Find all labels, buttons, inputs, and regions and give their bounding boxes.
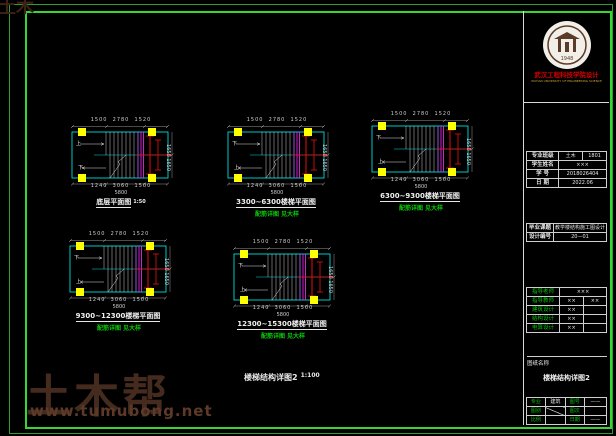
plan-title: 12300~15300楼梯平面图 bbox=[228, 320, 338, 328]
cell: 土木 bbox=[559, 152, 583, 161]
dimension-bottom: 1240 3060 1500 bbox=[222, 184, 332, 189]
cell: 专业班级 bbox=[527, 152, 559, 161]
cell bbox=[545, 416, 565, 425]
organization-name-en: WUHAN UNIVERSITY OF ENGINEERING SCIENCE bbox=[530, 79, 602, 83]
sheet-name-value: 楼梯结构详图2 bbox=[524, 373, 609, 383]
cell: 日 期 bbox=[527, 179, 559, 188]
cell: ×× bbox=[583, 297, 606, 306]
university-seal-icon: 1948 bbox=[541, 19, 593, 71]
plan-title: 9300~12300楼梯平面图 bbox=[64, 312, 174, 320]
cell: ×× bbox=[560, 324, 584, 333]
dimension-top: 1500 2780 1520 bbox=[66, 118, 176, 123]
watermark-corner: 土木帮 bbox=[0, 0, 42, 14]
drawing-number-grid: 专业 建筑 图号 —— 图别 图次 比例 日期 —— bbox=[526, 397, 607, 425]
cell: 电算设计 bbox=[527, 324, 560, 333]
up-label: 下 bbox=[238, 262, 243, 269]
stair-plan-drawing bbox=[228, 246, 338, 310]
cell bbox=[584, 407, 606, 416]
title-block-logo-section: 1948 武汉工程科技学院设计 WUHAN UNIVERSITY OF ENGI… bbox=[524, 11, 609, 103]
cell bbox=[583, 306, 606, 315]
plan-note: 配筋详图 见大样 bbox=[222, 209, 332, 218]
dimension-right: 1650 1650 bbox=[165, 144, 170, 171]
cell: 毕业课题 bbox=[527, 224, 554, 233]
cell: 2018026404 bbox=[559, 170, 607, 179]
dimension-bottom: 1240 3060 1500 bbox=[228, 306, 338, 311]
cell bbox=[583, 315, 606, 324]
plan-note: 配筋详图 见大样 bbox=[366, 203, 476, 212]
plan-note: 配筋详图 见大样 bbox=[228, 331, 338, 340]
cad-sheet: 1500 2780 1520 1650 1650 上 下 1240 3060 1… bbox=[0, 0, 616, 436]
cell: ×× bbox=[560, 306, 584, 315]
dimension-total: 5800 bbox=[366, 185, 476, 190]
cell: 结构设计 bbox=[527, 315, 560, 324]
cell: 日期 bbox=[565, 416, 584, 425]
cell: ×× bbox=[560, 315, 584, 324]
dimension-top: 1500 2780 1520 bbox=[228, 240, 338, 245]
cell bbox=[545, 407, 565, 416]
down-label: 上 bbox=[76, 278, 81, 285]
organization-name: 武汉工程科技学院设计 bbox=[527, 71, 605, 78]
dimension-total: 5800 bbox=[222, 191, 332, 196]
stair-plan-6300-9300: 1500 2780 1520 1650 1650 下 上 1240 3060 1… bbox=[366, 112, 484, 214]
cell: —— bbox=[584, 398, 606, 407]
cell: 指导教师 bbox=[527, 297, 560, 306]
cell: 学生姓名 bbox=[527, 161, 559, 170]
cell: 专业 bbox=[527, 398, 546, 407]
cell: 1801 bbox=[583, 152, 607, 161]
cell: 建筑设计 bbox=[527, 306, 560, 315]
dimension-bottom: 1240 3060 1500 bbox=[366, 178, 476, 183]
plan-title: 6300~9300楼梯平面图 bbox=[366, 192, 476, 200]
cell: 设计编号 bbox=[527, 233, 554, 242]
stair-plan-9300-12300: 1500 2780 1520 1650 1650 下 上 1240 3060 1… bbox=[64, 232, 182, 334]
up-label: 上 bbox=[76, 140, 81, 147]
down-label: 上 bbox=[240, 286, 245, 293]
stair-plan-drawing bbox=[366, 118, 476, 182]
down-label: 上 bbox=[378, 158, 383, 165]
dimension-total: 5800 bbox=[228, 313, 338, 318]
watermark-url: www.tumubong.net bbox=[30, 402, 213, 420]
student-info-table: 专业班级 土木 1801 学生姓名 ××× 学 号 2018026404 日 期… bbox=[526, 151, 607, 188]
dimension-right: 1650 1650 bbox=[327, 266, 332, 293]
sheet-name-label: 图纸名称 bbox=[527, 356, 607, 367]
sheet-title: 楼梯结构详图21:100 bbox=[244, 372, 320, 383]
dimension-top: 1500 2780 1520 bbox=[366, 112, 476, 117]
down-label: 下 bbox=[78, 164, 83, 171]
cell bbox=[583, 324, 606, 333]
stair-plan-drawing bbox=[66, 124, 176, 188]
cell: —— bbox=[584, 416, 606, 425]
cell: ×× bbox=[560, 297, 584, 306]
cell: 指导老师 bbox=[527, 288, 560, 297]
cell: 教学楼结构施工图设计 bbox=[553, 224, 606, 233]
cell: 20—01 bbox=[553, 233, 606, 242]
project-info-table: 毕业课题 教学楼结构施工图设计 设计编号 20—01 bbox=[526, 223, 607, 242]
cell: 比例 bbox=[527, 416, 546, 425]
dimension-bottom: 1240 3060 1500 bbox=[66, 184, 176, 189]
signatures-table: 指导老师 ××× 指导教师 ×× ×× 建筑设计 ×× 结构设计 ×× 电算设计… bbox=[526, 287, 607, 333]
cell: 图别 bbox=[527, 407, 546, 416]
down-label: 上 bbox=[234, 164, 239, 171]
dimension-top: 1500 2780 1520 bbox=[64, 232, 174, 237]
dimension-bottom: 1240 3060 1500 bbox=[64, 298, 174, 303]
plan-note: 配筋详图 见大样 bbox=[64, 323, 174, 332]
stair-plan-drawing bbox=[64, 238, 174, 302]
up-label: 下 bbox=[232, 140, 237, 147]
up-label: 下 bbox=[74, 254, 79, 261]
dimension-top: 1500 2780 1520 bbox=[222, 118, 332, 123]
title-block: 1948 武汉工程科技学院设计 WUHAN UNIVERSITY OF ENGI… bbox=[523, 11, 609, 425]
stair-plan-drawing bbox=[222, 124, 332, 188]
cell: 图号 bbox=[565, 398, 584, 407]
cell: ××× bbox=[560, 288, 607, 297]
dimension-total: 5800 bbox=[66, 191, 176, 196]
cell: 图次 bbox=[565, 407, 584, 416]
dimension-right: 1650 1650 bbox=[163, 258, 168, 285]
cell: 2022.06 bbox=[559, 179, 607, 188]
plan-title: 底层平面图1:50 bbox=[66, 198, 176, 206]
dimension-right: 1650 1650 bbox=[321, 144, 326, 171]
dimension-total: 5800 bbox=[64, 305, 174, 310]
cell: 学 号 bbox=[527, 170, 559, 179]
up-label: 下 bbox=[376, 134, 381, 141]
svg-text:1948: 1948 bbox=[560, 56, 573, 62]
stair-plan-3300-6300: 1500 2780 1520 1650 1650 下 上 1240 3060 1… bbox=[222, 118, 340, 220]
plan-title: 3300~6300楼梯平面图 bbox=[222, 198, 332, 206]
dimension-right: 1650 1650 bbox=[465, 138, 470, 165]
cell: 建筑 bbox=[545, 398, 565, 407]
stair-plan-ground: 1500 2780 1520 1650 1650 上 下 1240 3060 1… bbox=[66, 118, 184, 220]
cell: ××× bbox=[559, 161, 607, 170]
stair-plan-12300-15300: 1500 2780 1520 1650 1650 下 上 1240 3060 1… bbox=[228, 240, 346, 342]
